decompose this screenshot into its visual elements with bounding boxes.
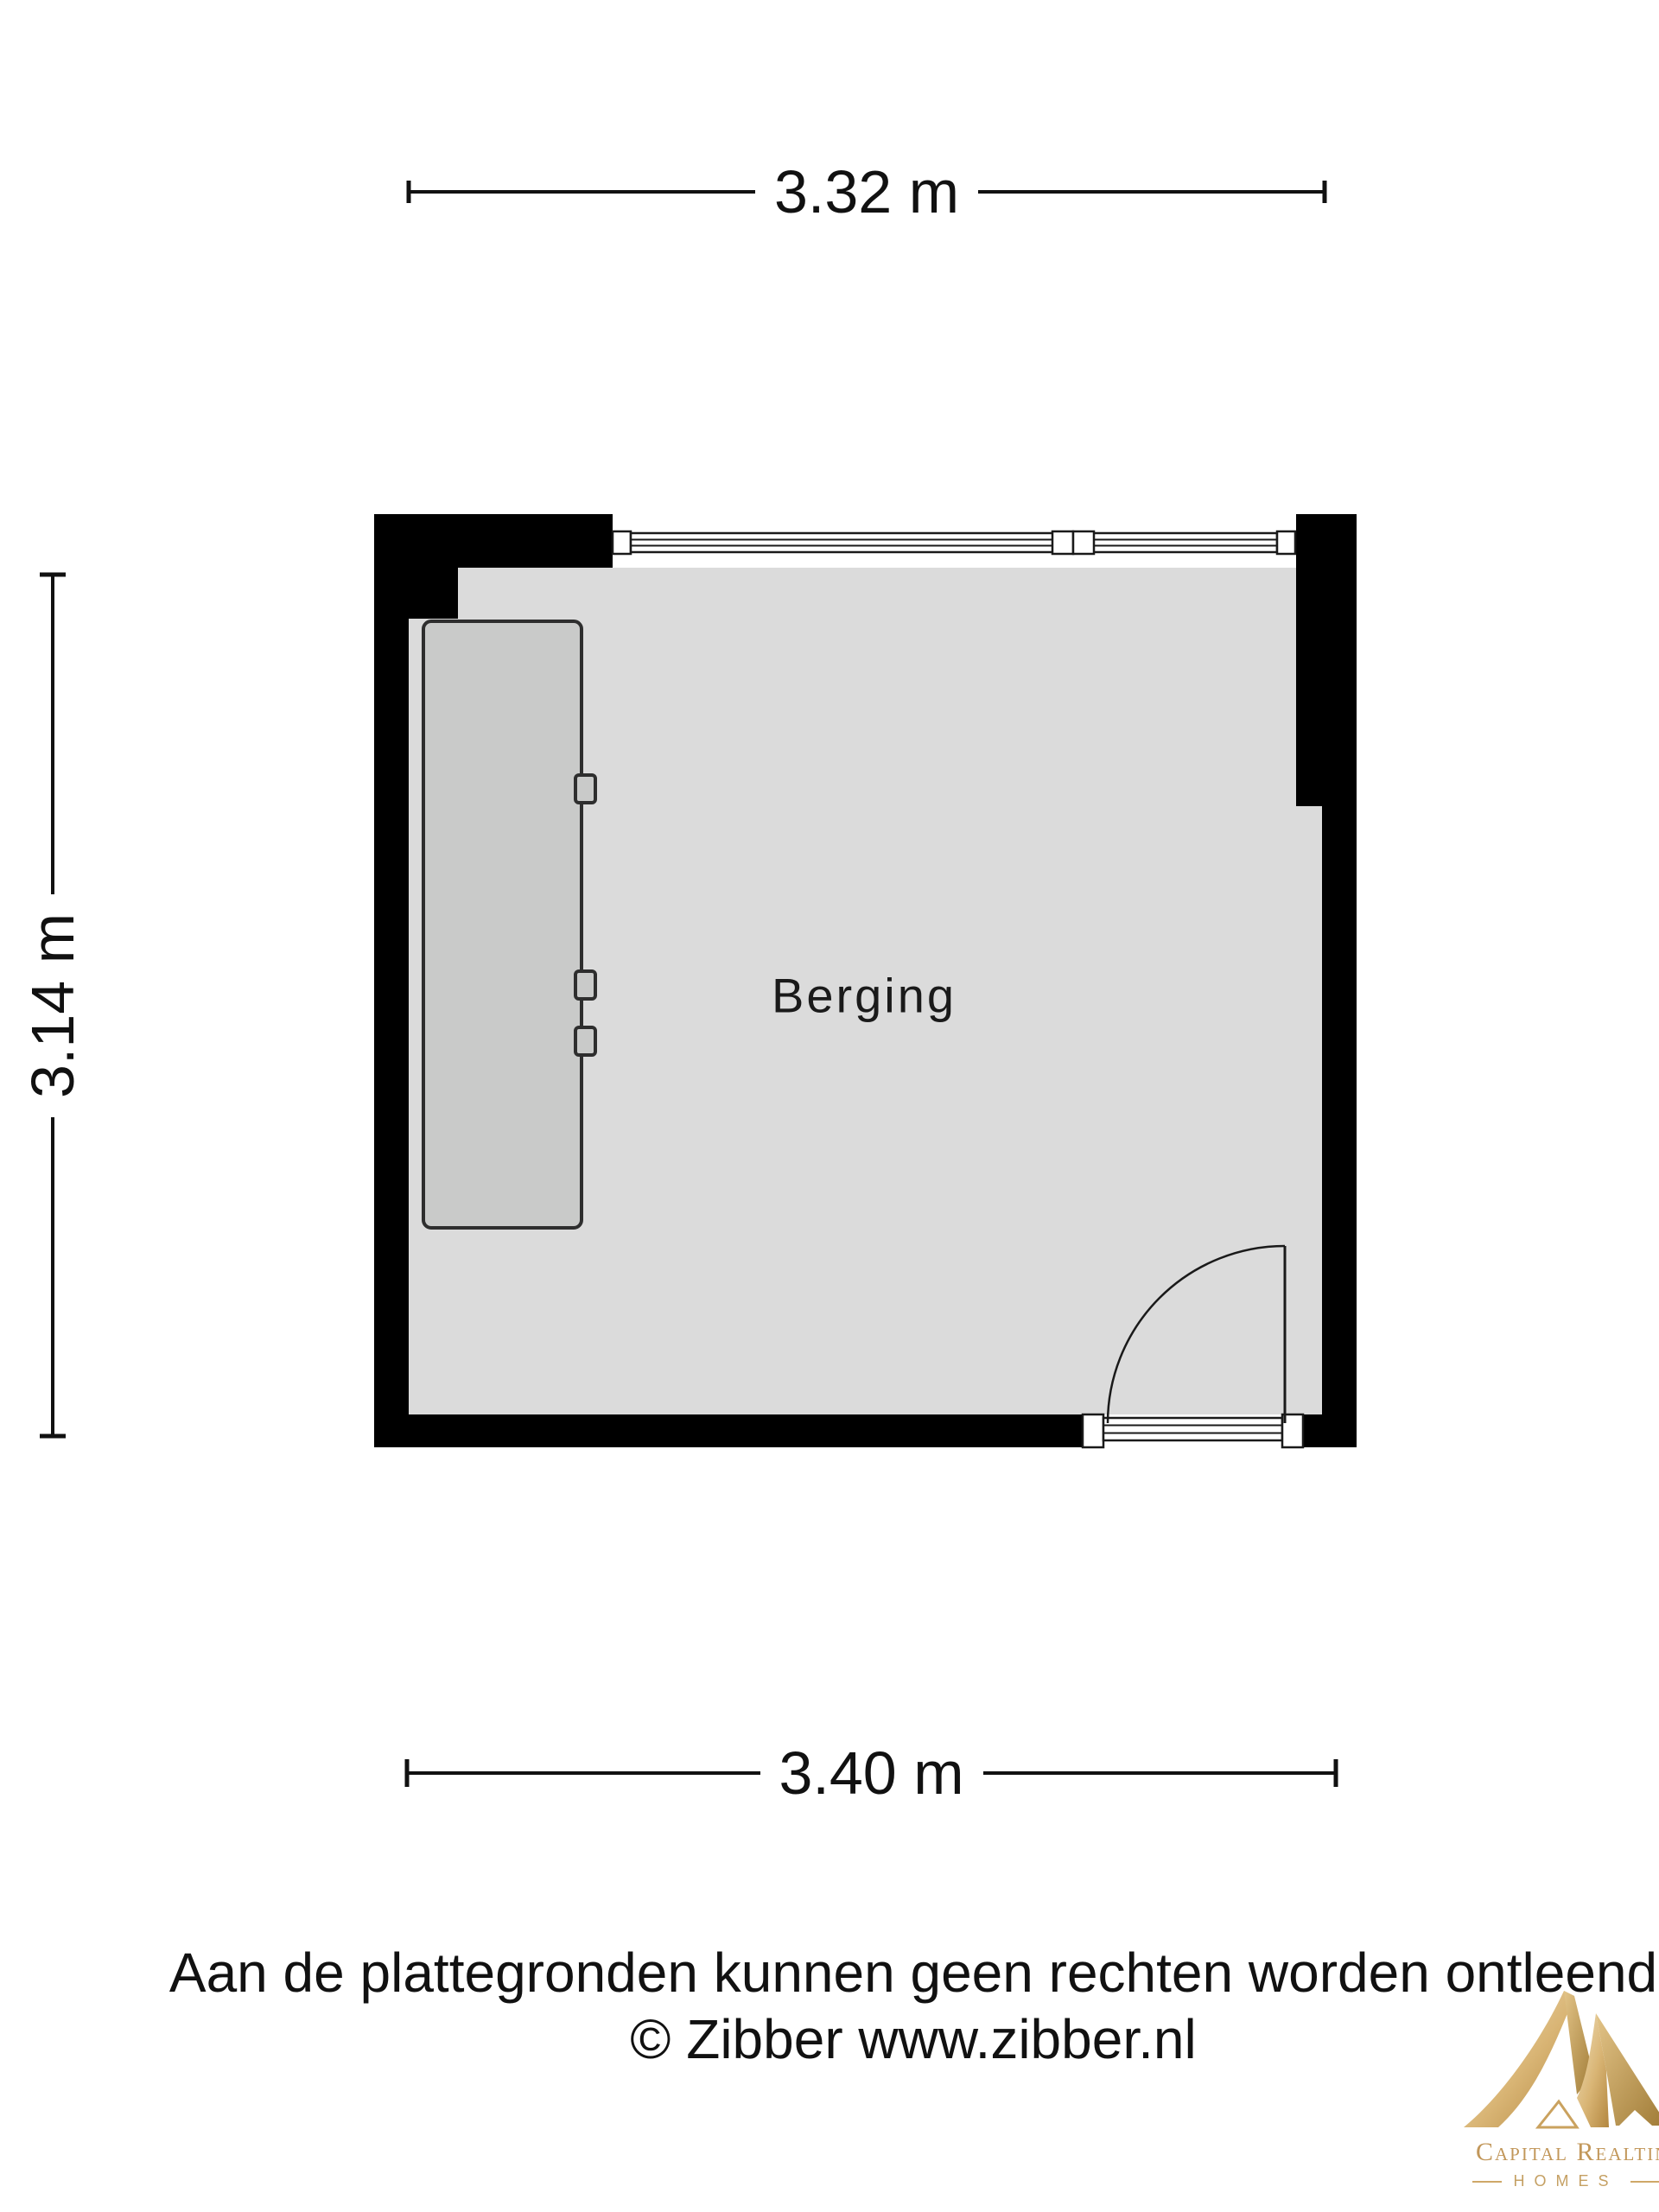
floorplan-page: 3.32 m 3.14 m 3.40 m Berging Aan de plat… (0, 0, 1659, 2212)
room-name-label: Berging (772, 968, 957, 1024)
wall-right-upper (1296, 514, 1357, 806)
logo-brand-text: Capital Realtin (1476, 2138, 1659, 2167)
wall-bottom-left (374, 1414, 1083, 1447)
brand-logo: Capital Realtin HOMES (1462, 1989, 1659, 2212)
footer-text: Aan de plattegronden kunnen geen rechten… (169, 1940, 1657, 2073)
wall-left (374, 514, 409, 1447)
door-sill (1103, 1418, 1282, 1440)
cabinet (423, 621, 582, 1228)
logo-tagline-text: HOMES (1514, 2172, 1618, 2190)
logo-rule-left (1472, 2181, 1502, 2183)
window-end-post-left (613, 531, 631, 554)
logo-tagline-row: HOMES (1472, 2172, 1659, 2190)
cabinet-hinge-3 (575, 1027, 595, 1055)
copyright-line: © Zibber www.zibber.nl (169, 2006, 1657, 2073)
wall-right-lower (1322, 806, 1357, 1447)
window-mullion-a (1052, 531, 1073, 554)
disclaimer-line: Aan de plattegronden kunnen geen rechten… (169, 1940, 1657, 2006)
door-post-left (1083, 1414, 1103, 1447)
cabinet-hinge-1 (575, 775, 595, 803)
floor-plan-drawing (0, 0, 1659, 2212)
logo-rule-right (1630, 2181, 1659, 2183)
window-mullion-b (1073, 531, 1094, 554)
mountain-logo-icon (1462, 1989, 1659, 2136)
window-end-post-right (1277, 531, 1295, 554)
window-glass (631, 533, 1277, 552)
mountain-base-triangle (1538, 2101, 1577, 2127)
wall-bottom-right (1303, 1414, 1357, 1447)
cabinet-hinge-2 (575, 971, 595, 999)
